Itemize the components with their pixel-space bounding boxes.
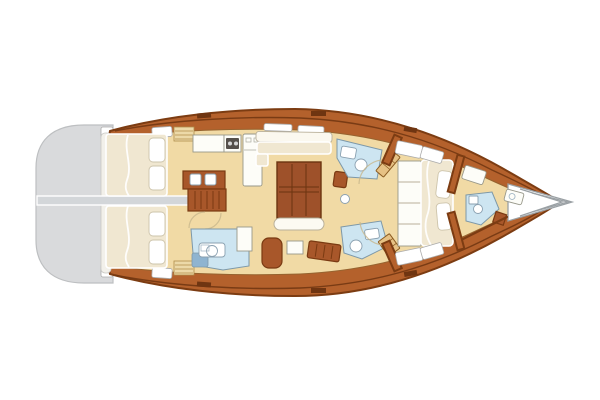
sailboat-deck-plan — [0, 0, 600, 400]
settee-back — [256, 131, 332, 142]
aft-cabin-divider — [37, 196, 189, 205]
dresser — [174, 127, 194, 141]
cabinet-panel — [287, 241, 303, 254]
coachroof-window — [264, 124, 292, 132]
vanity — [199, 243, 225, 257]
settee-seat — [257, 142, 331, 154]
deck-hatch — [152, 267, 173, 278]
companionway-steps — [188, 189, 226, 211]
galley-sink-counter — [183, 171, 225, 189]
pillow — [149, 166, 165, 190]
salon-table — [277, 162, 321, 218]
table-bench — [274, 218, 324, 230]
sink — [340, 146, 357, 159]
mast-step — [341, 195, 350, 204]
toilet — [350, 240, 362, 252]
cabinet — [262, 238, 282, 268]
stove — [224, 135, 241, 152]
sink — [469, 196, 478, 204]
toilet — [474, 205, 483, 214]
deck-cleat — [311, 288, 326, 293]
deck-cleat — [197, 113, 211, 119]
head-door — [237, 227, 252, 251]
sink — [364, 228, 379, 240]
deck-cleat — [197, 282, 211, 288]
sink — [205, 174, 216, 185]
deck-cleat — [311, 111, 326, 116]
pillow — [149, 240, 165, 264]
sink — [190, 174, 201, 185]
settee-wing — [256, 154, 268, 166]
dresser — [174, 261, 194, 275]
pillow — [149, 212, 165, 236]
galley-counter — [193, 135, 224, 152]
berth-foot-lockers — [398, 161, 421, 246]
pillow — [149, 138, 165, 162]
floorplan-canvas — [0, 0, 600, 400]
